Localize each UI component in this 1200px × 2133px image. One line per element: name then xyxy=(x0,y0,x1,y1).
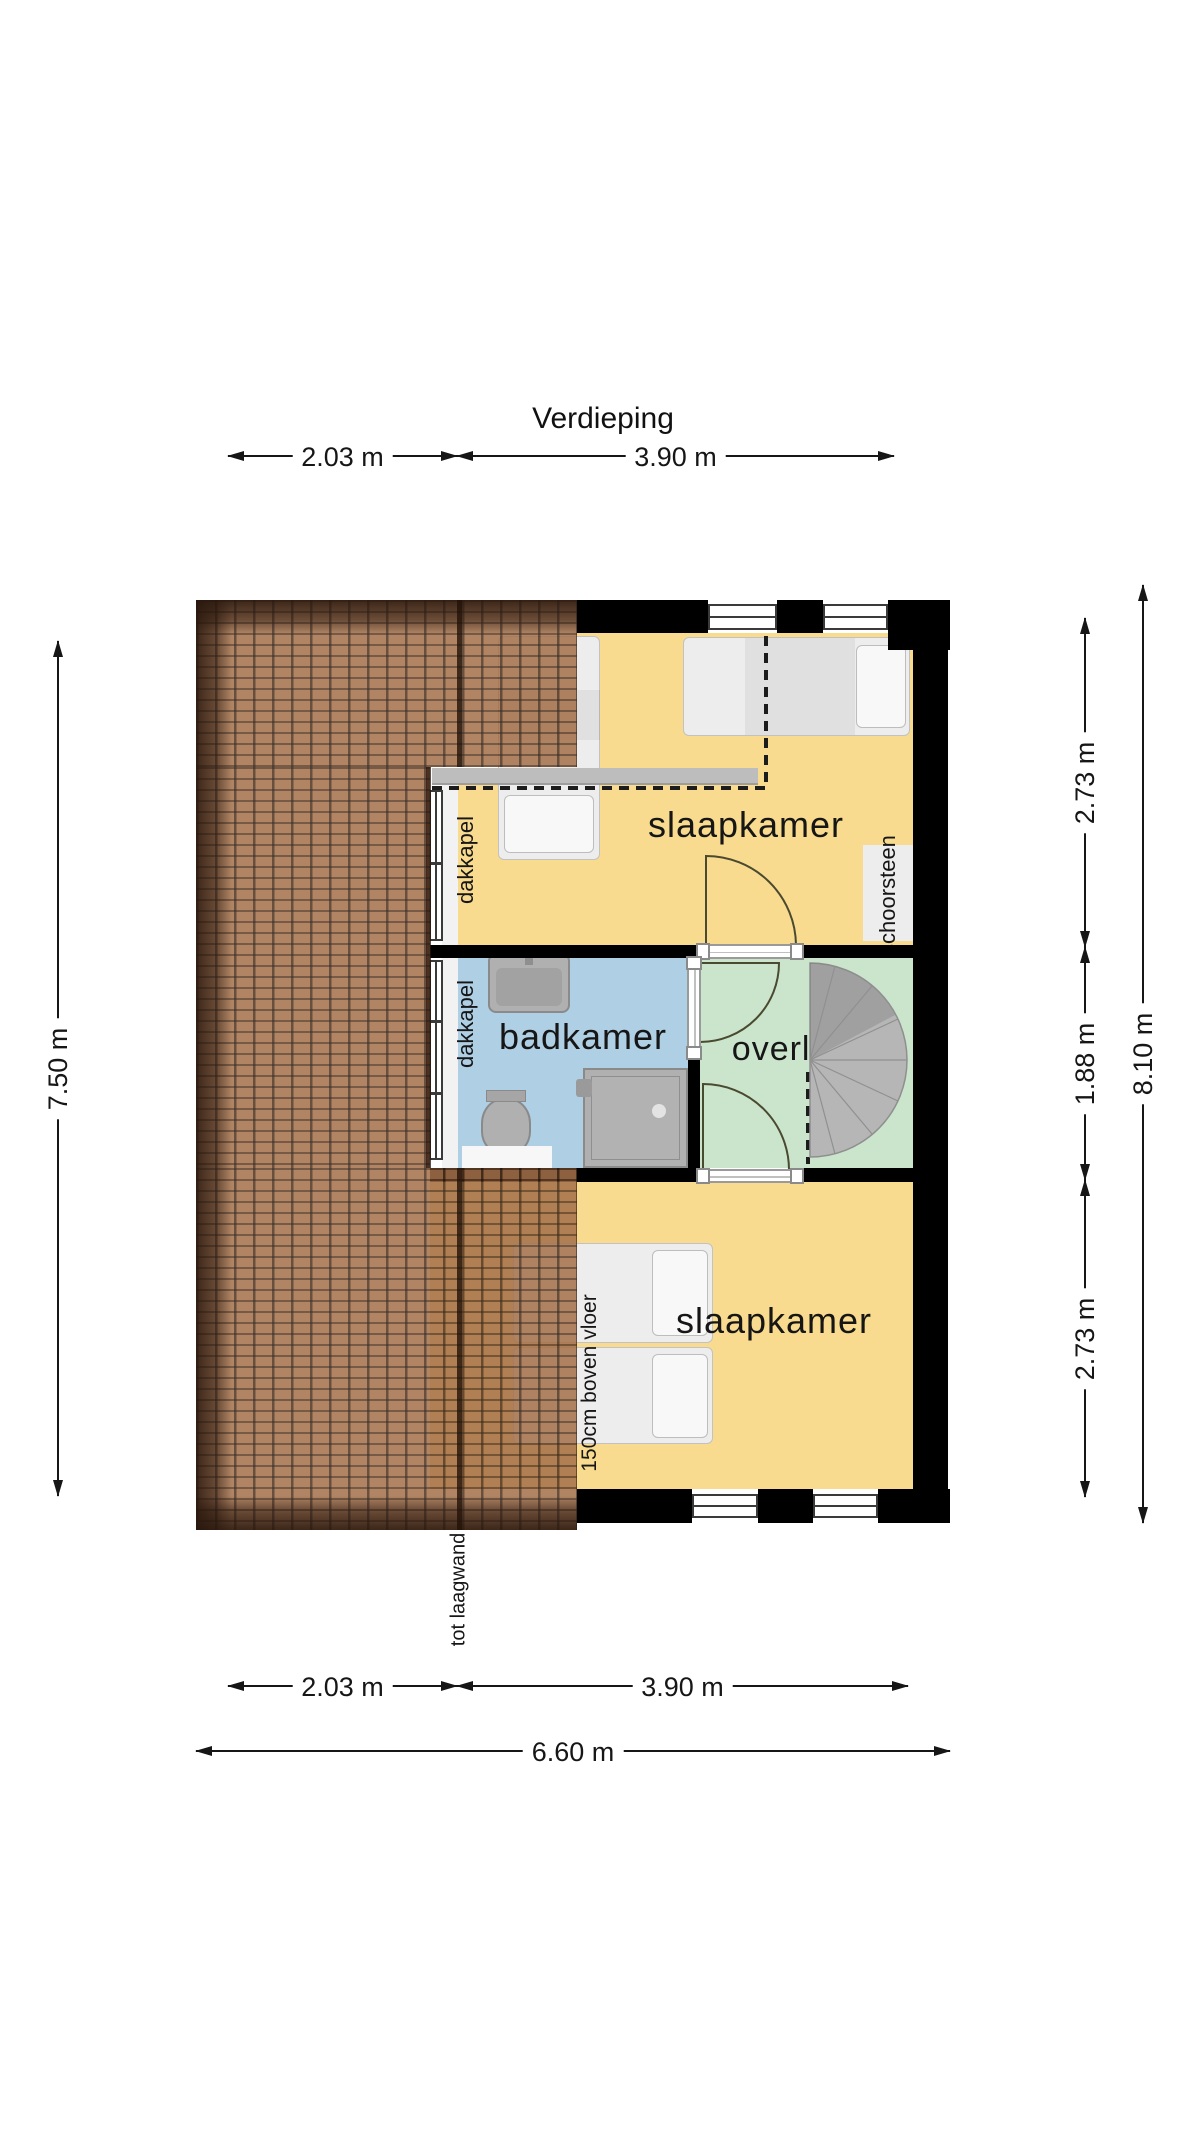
chimney-label: schoorsteen xyxy=(875,825,901,965)
bedroom-top-label: slaapkamer xyxy=(596,804,896,846)
dimension-bottom-left: 2.03 m xyxy=(228,1685,457,1687)
sink-basin xyxy=(496,968,562,1006)
bedroom-bottom-label: slaapkamer xyxy=(624,1300,924,1342)
dimension-top-left: 2.03 m xyxy=(228,455,457,457)
bed-top-left-pillow xyxy=(504,795,594,853)
door-post xyxy=(686,956,702,970)
dimension-right-2: 1.88 m xyxy=(1084,947,1086,1180)
dimension-label: 7.50 m xyxy=(42,1018,74,1119)
shower-tray xyxy=(591,1076,680,1160)
dimension-label: 2.73 m xyxy=(1069,732,1101,833)
threshold-bathroom xyxy=(687,962,701,1053)
window-dormer-bathroom xyxy=(429,960,443,1160)
door-post xyxy=(790,1168,804,1184)
door-post xyxy=(696,1168,710,1184)
window-bottom-2 xyxy=(813,1494,878,1518)
wall-right xyxy=(913,600,948,1523)
roof-bottom-section xyxy=(196,1168,577,1530)
dimension-label: 3.90 m xyxy=(625,441,726,473)
dimension-left-total: 7.50 m xyxy=(57,641,59,1496)
dimension-label: 6.60 m xyxy=(523,1736,624,1768)
dimension-label: 2.73 m xyxy=(1069,1288,1101,1389)
bed-bottom-2-pillow xyxy=(652,1354,708,1438)
dormer-bathroom-label: dakkapel xyxy=(453,964,479,1084)
window-top-2 xyxy=(823,604,888,630)
low-wall-note: tot laagwand xyxy=(448,1520,471,1660)
bed-height-note: 150cm boven vloer xyxy=(578,1283,602,1483)
floorplan-page: Verdieping 2.03 m 3.90 m schoorsteen xyxy=(0,0,1200,2133)
wall-mid2-right xyxy=(800,1168,913,1182)
wall-bottom-2 xyxy=(758,1489,813,1523)
bed-top-right-pillow xyxy=(856,645,906,728)
dimension-bottom-total: 6.60 m xyxy=(196,1750,950,1752)
door-post xyxy=(790,943,804,960)
dimension-label: 2.03 m xyxy=(292,441,393,473)
window-divider xyxy=(430,1020,442,1023)
wall-bottom-corner xyxy=(878,1489,950,1523)
roof-left-section xyxy=(196,767,430,1168)
dimension-bottom-right: 3.90 m xyxy=(457,1685,908,1687)
shower-head-icon xyxy=(576,1079,592,1097)
window-top-1 xyxy=(708,604,777,630)
toilet-tank xyxy=(486,1090,526,1102)
dimension-label: 2.03 m xyxy=(292,1671,393,1703)
bed-top-right-duvet-fold xyxy=(745,638,855,735)
dimension-label: 1.88 m xyxy=(1069,1013,1101,1114)
page-title: Verdieping xyxy=(453,402,753,436)
dimension-right-3: 2.73 m xyxy=(1084,1180,1086,1497)
wall-bath-landing-bottom xyxy=(688,1053,700,1182)
wall-top-2 xyxy=(777,600,823,633)
door-post xyxy=(686,1046,702,1060)
roof-top-section xyxy=(196,600,577,767)
threshold-bedroom-bottom xyxy=(700,1169,800,1183)
shower-drain xyxy=(652,1104,666,1118)
dimension-label: 8.10 m xyxy=(1127,1004,1159,1105)
window-dormer-bedroom xyxy=(429,790,443,941)
wall-top-1 xyxy=(577,600,708,633)
dimension-right-total: 8.10 m xyxy=(1142,585,1144,1523)
bath-mat xyxy=(462,1146,552,1168)
dimension-label: 3.90 m xyxy=(632,1671,733,1703)
window-divider xyxy=(430,1092,442,1095)
wall-bottom-1 xyxy=(577,1489,692,1523)
bedroom-top-dashed-line xyxy=(764,636,768,788)
knee-wall-dashed-line xyxy=(432,786,765,790)
dormer-bedroom-label: dakkapel xyxy=(453,800,479,920)
dimension-right-1: 2.73 m xyxy=(1084,618,1086,947)
stair-dashed-line xyxy=(806,1072,810,1164)
window-divider xyxy=(430,862,442,865)
threshold-bedroom-top xyxy=(700,944,800,959)
dimension-top-right: 3.90 m xyxy=(457,455,894,457)
wall-mid1-right xyxy=(800,945,913,958)
knee-wall-strip xyxy=(432,768,758,785)
window-bottom-1 xyxy=(692,1494,758,1518)
wall-mid1-left xyxy=(430,945,700,958)
